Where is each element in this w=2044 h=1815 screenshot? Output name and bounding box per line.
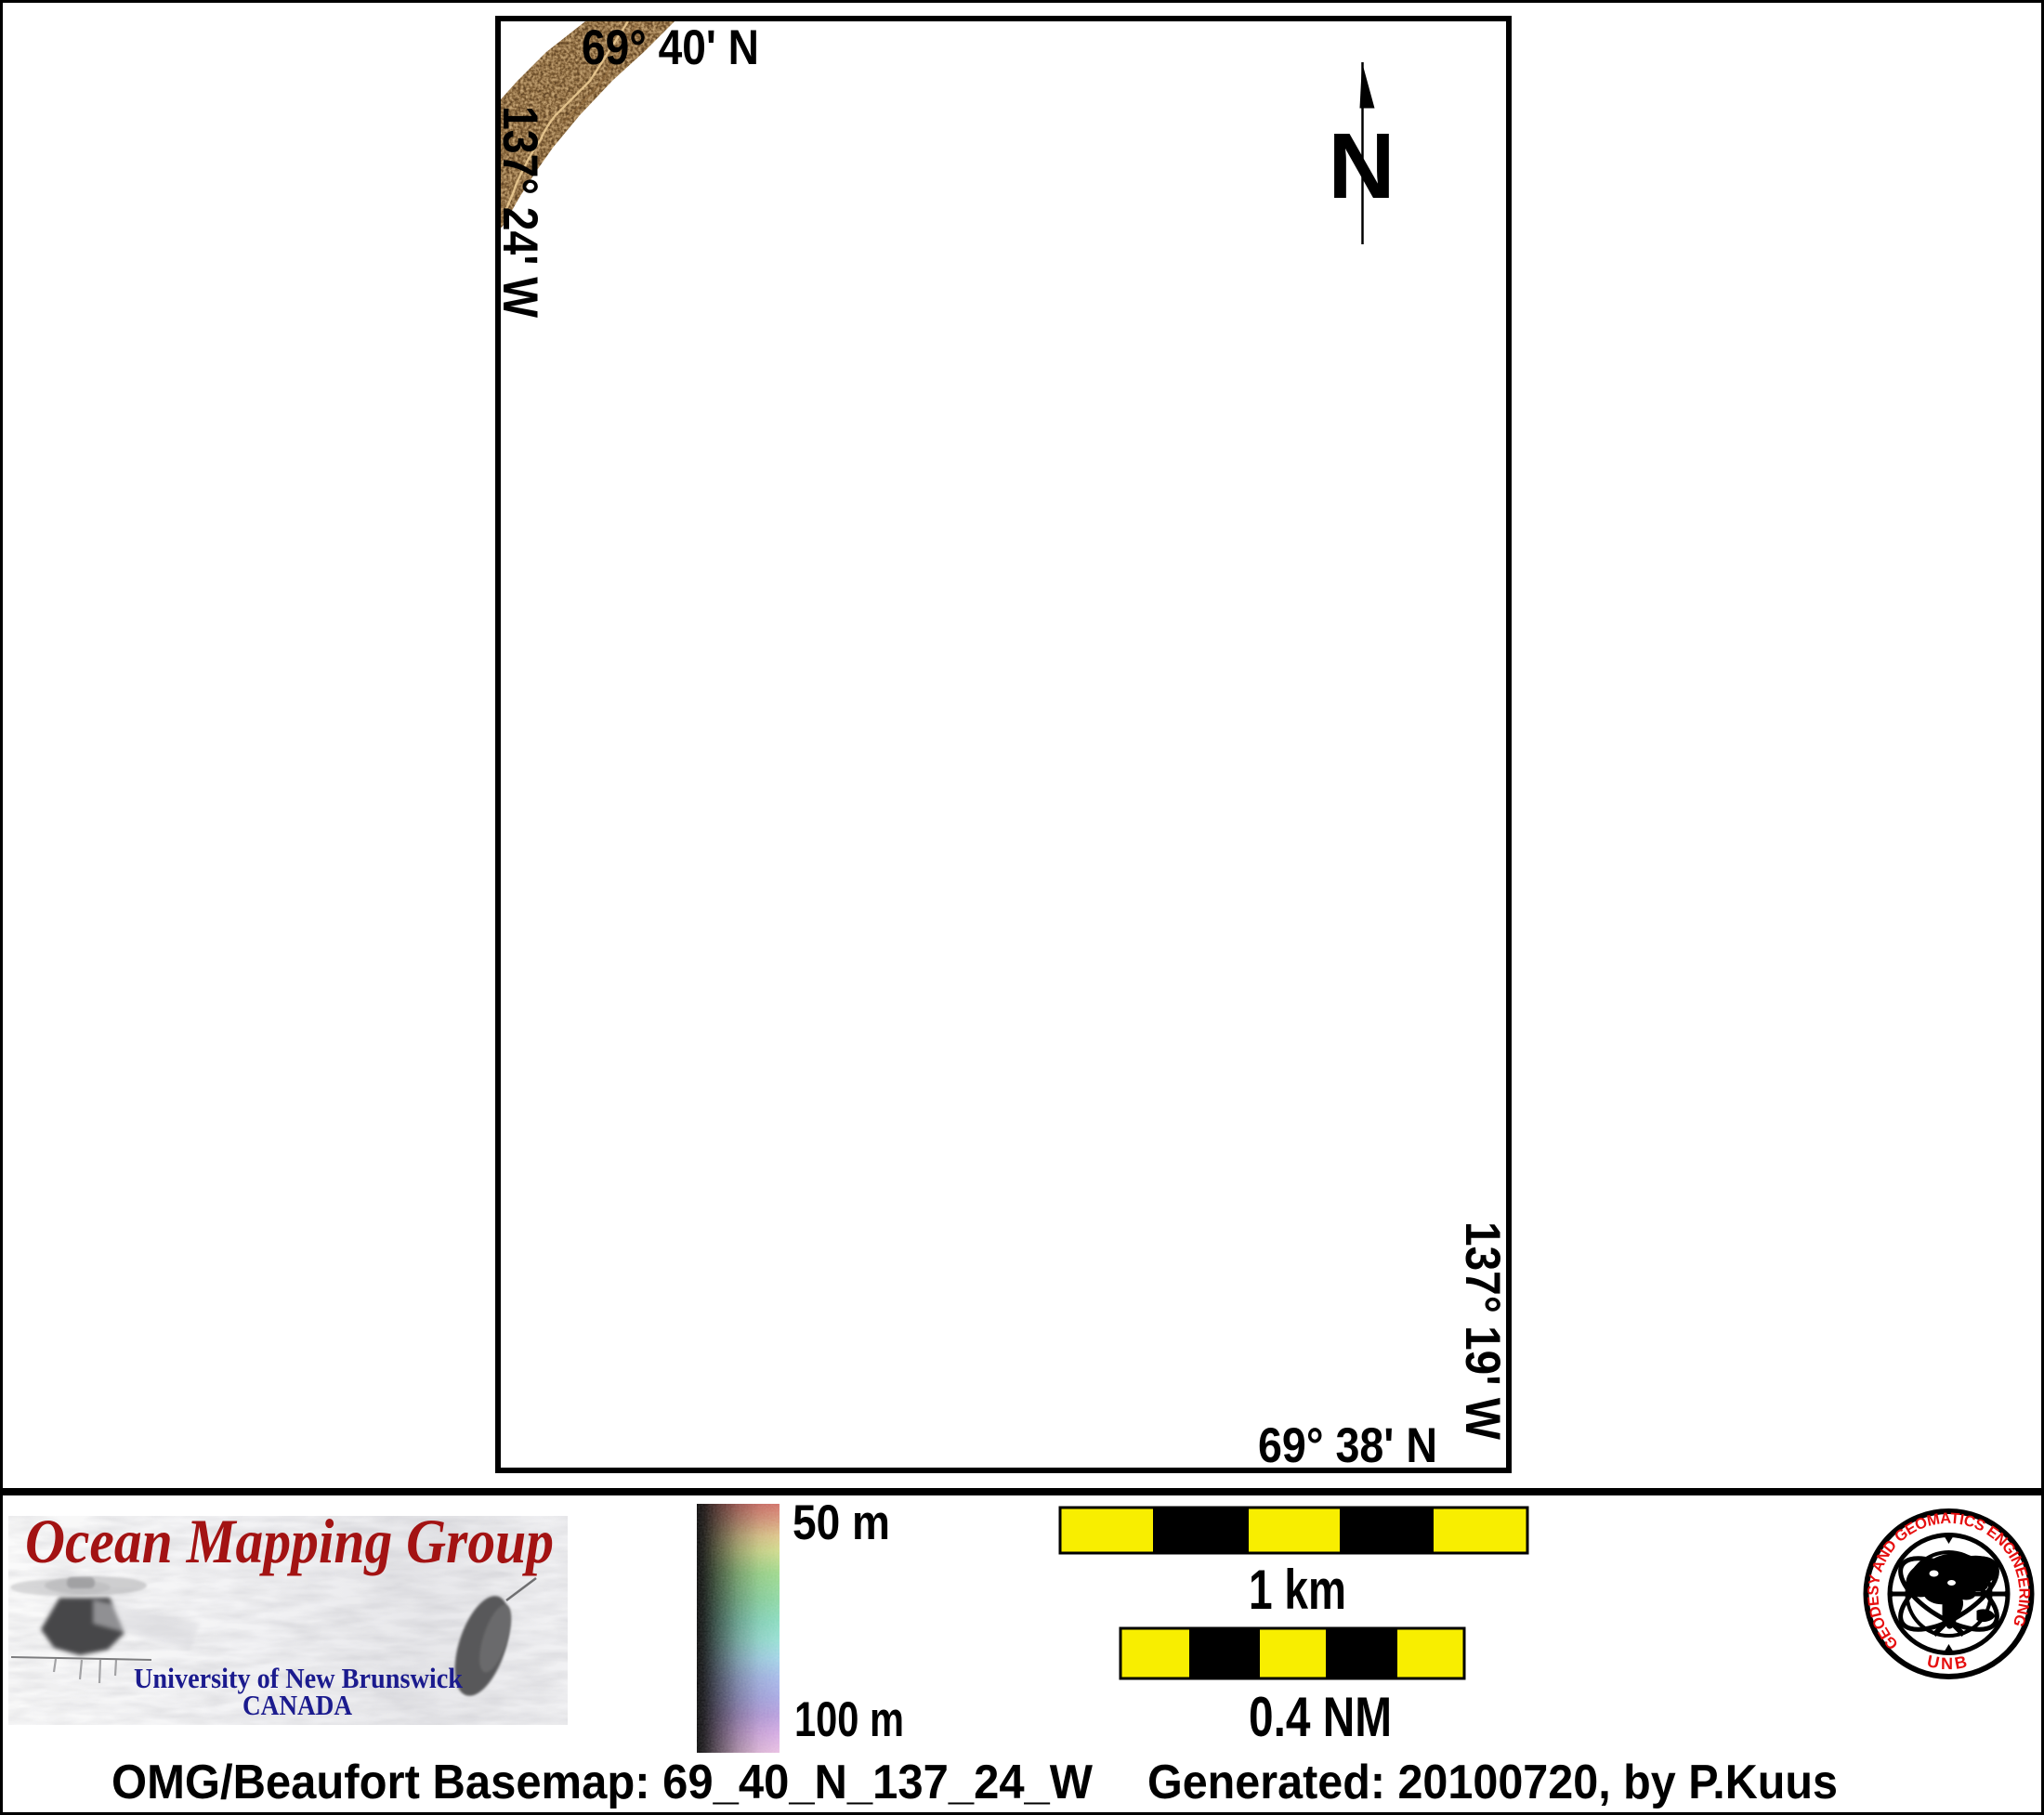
svg-text:0.4 NM: 0.4 NM [1249,1686,1392,1748]
svg-text:CANADA: CANADA [242,1689,353,1721]
svg-text:Ocean Mapping Group: Ocean Mapping Group [25,1506,554,1576]
svg-text:Generated: 20100720, by P.Kuus: Generated: 20100720, by P.Kuus [1147,1756,1838,1809]
svg-text:100 m: 100 m [794,1692,904,1747]
svg-text:69° 38' N: 69° 38' N [1258,1418,1437,1473]
svg-text:137° 19' W: 137° 19' W [1455,1221,1510,1440]
svg-text:69° 40' N: 69° 40' N [582,20,759,75]
svg-text:50 m: 50 m [793,1495,890,1550]
svg-text:N: N [1328,114,1395,218]
svg-text:UNB: UNB [1925,1652,1971,1673]
svg-text:1 km: 1 km [1249,1559,1346,1621]
svg-text:OMG/Beaufort Basemap: 69_40_N_: OMG/Beaufort Basemap: 69_40_N_137_24_W [111,1756,1094,1809]
svg-text:137° 24' W: 137° 24' W [492,106,547,318]
